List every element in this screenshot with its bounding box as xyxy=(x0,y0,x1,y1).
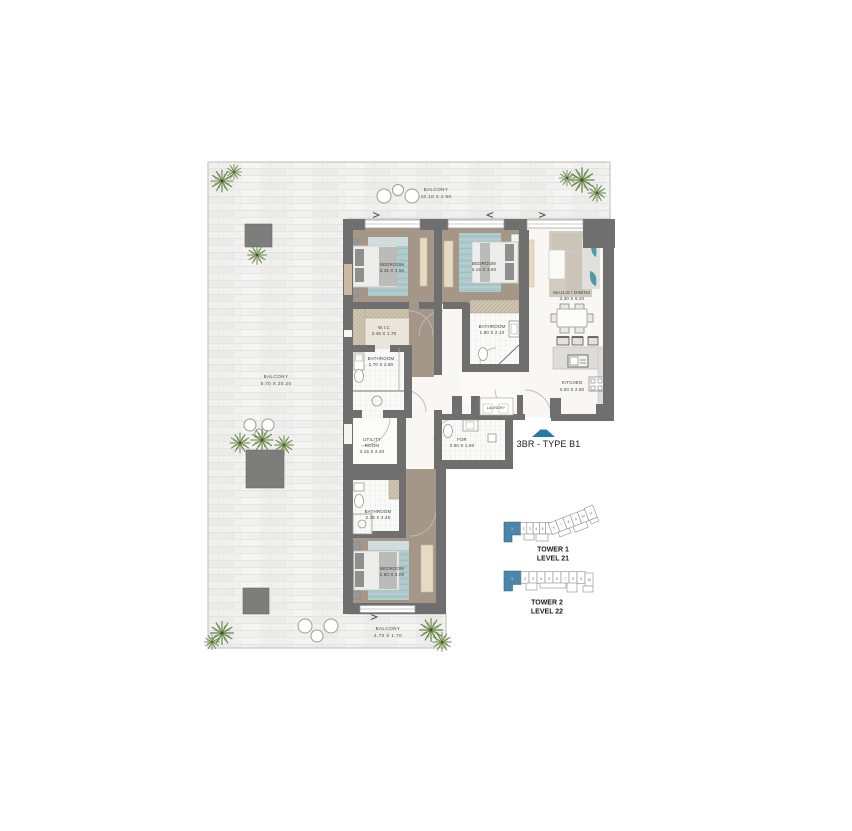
svg-text:UTILITY: UTILITY xyxy=(363,437,381,442)
svg-text:BATHROOM: BATHROOM xyxy=(479,324,506,329)
svg-text:4: 4 xyxy=(540,577,542,581)
svg-text:2: 2 xyxy=(523,527,525,531)
svg-text:10: 10 xyxy=(587,578,591,582)
svg-text:5: 5 xyxy=(542,527,544,531)
svg-text:4.70 X 1.70: 4.70 X 1.70 xyxy=(374,633,402,638)
svg-text:BATHROOM: BATHROOM xyxy=(365,509,392,514)
svg-text:BALCONY: BALCONY xyxy=(424,187,449,192)
svg-text:MAJLIS / DINING: MAJLIS / DINING xyxy=(553,290,591,295)
svg-text:3.45 X 4.50: 3.45 X 4.50 xyxy=(380,268,405,273)
svg-text:6: 6 xyxy=(556,577,558,581)
svg-text:TOWER 1: TOWER 1 xyxy=(537,547,569,554)
svg-text:BEDROOM: BEDROOM xyxy=(380,262,404,267)
svg-text:3.00 X 1.60: 3.00 X 1.60 xyxy=(450,443,475,448)
svg-text:BALCONY: BALCONY xyxy=(376,626,401,631)
svg-text:3: 3 xyxy=(529,527,531,531)
svg-text:BATHROOM: BATHROOM xyxy=(368,356,395,361)
svg-text:2.25 X 2.45: 2.25 X 2.45 xyxy=(366,515,391,520)
svg-text:W.I.C: W.I.C xyxy=(378,325,390,330)
svg-text:LAUNDRY: LAUNDRY xyxy=(487,406,506,410)
svg-text:BEDROOM: BEDROOM xyxy=(472,261,496,266)
svg-text:KITCHEN: KITCHEN xyxy=(562,380,583,385)
svg-text:7: 7 xyxy=(564,577,566,581)
svg-text:5: 5 xyxy=(548,577,550,581)
svg-text:2: 2 xyxy=(524,577,526,581)
svg-text:ROOM: ROOM xyxy=(365,443,380,448)
svg-text:3.15 X 2.20: 3.15 X 2.20 xyxy=(360,449,385,454)
svg-text:1: 1 xyxy=(511,527,513,531)
svg-text:8: 8 xyxy=(572,577,574,581)
svg-text:4: 4 xyxy=(535,527,537,531)
svg-text:2.80 X 4.00: 2.80 X 4.00 xyxy=(380,572,405,577)
svg-text:FOR: FOR xyxy=(457,437,467,442)
svg-text:BEDROOM: BEDROOM xyxy=(380,566,404,571)
svg-text:3BR - TYPE B1: 3BR - TYPE B1 xyxy=(517,439,581,449)
svg-text:3.30 X 6.20: 3.30 X 6.20 xyxy=(560,296,585,301)
svg-text:2.70 X 2.90: 2.70 X 2.90 xyxy=(369,362,394,367)
svg-text:3: 3 xyxy=(532,577,534,581)
svg-text:LEVEL 21: LEVEL 21 xyxy=(537,556,569,563)
svg-text:9: 9 xyxy=(580,577,582,581)
svg-text:1.90 X 2.10: 1.90 X 2.10 xyxy=(480,330,505,335)
svg-text:3.00 X 2.80: 3.00 X 2.80 xyxy=(560,387,585,392)
svg-text:10.10 X 2.50: 10.10 X 2.50 xyxy=(421,194,452,199)
svg-text:4.15 X 3.60: 4.15 X 3.60 xyxy=(472,267,497,272)
svg-text:5.70 X 20.20: 5.70 X 20.20 xyxy=(261,381,292,386)
svg-text:LEVEL 22: LEVEL 22 xyxy=(531,609,563,616)
svg-text:TOWER 2: TOWER 2 xyxy=(531,600,563,607)
svg-text:3.45 X 1.70: 3.45 X 1.70 xyxy=(372,331,397,336)
svg-text:BALCONY: BALCONY xyxy=(264,374,289,379)
svg-text:1: 1 xyxy=(511,577,513,581)
